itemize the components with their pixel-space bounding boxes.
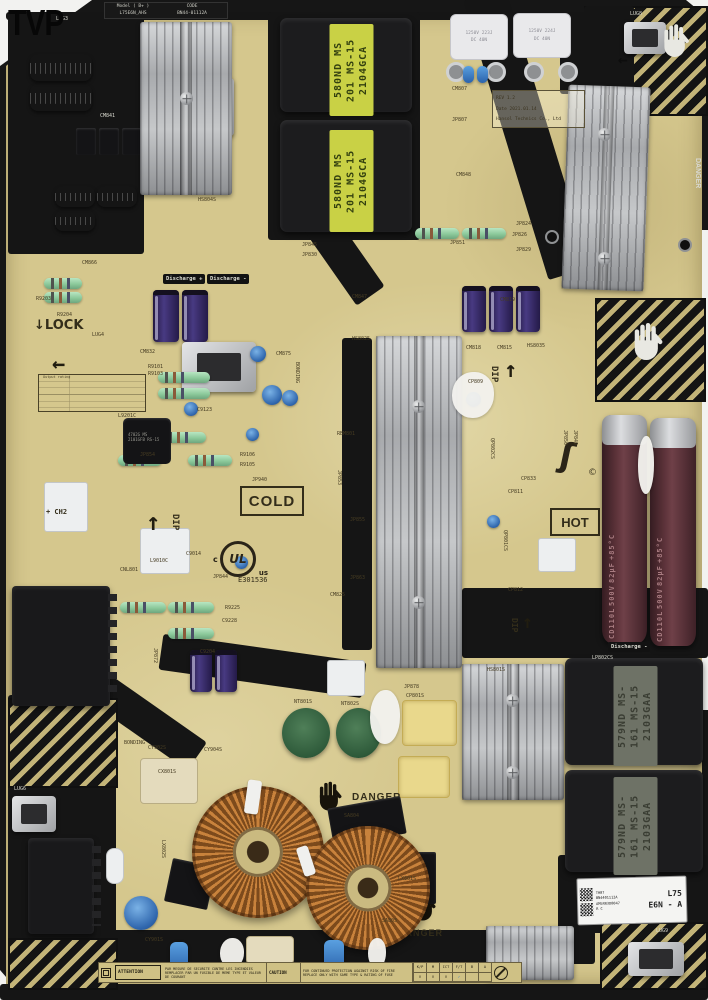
beige-component xyxy=(140,758,198,804)
purple-cap xyxy=(153,290,179,342)
class2-insulation-icon xyxy=(101,968,111,978)
metal-lug-clip-bl xyxy=(12,796,56,832)
blue-disc-cap xyxy=(184,402,198,416)
screw xyxy=(412,596,425,609)
electrolytic-cap xyxy=(97,186,137,207)
silkscreen-designator: CM832 xyxy=(140,349,155,355)
transformer-1-label: 580ND MS 201 MS-15 2104GCA xyxy=(330,24,374,116)
glue-blob xyxy=(370,690,400,744)
silkscreen-designator: CX801S xyxy=(158,769,176,775)
silkscreen-designator: CM825 xyxy=(330,592,345,598)
silkscreen-designator: R9103 xyxy=(148,371,163,377)
discharge-minus-label: Discharge - xyxy=(207,274,249,284)
solder-pad xyxy=(486,62,506,82)
blue-disc-cap xyxy=(487,515,500,528)
lug4-label: LUG4 xyxy=(92,332,104,338)
dip-label: DIP xyxy=(489,366,499,382)
silkscreen-designator: CP809 xyxy=(468,379,483,385)
mount-hole xyxy=(678,238,692,252)
film-cap-white-2: 1250V 224JDC 40N xyxy=(513,13,571,58)
silkscreen-designator: JP824 xyxy=(516,221,531,227)
white-component xyxy=(44,482,88,532)
silkscreen-designator: CY901S xyxy=(145,937,163,943)
film-cap-black xyxy=(76,128,96,155)
silkscreen-designator: CY902S xyxy=(148,745,166,751)
purple-cap xyxy=(182,290,208,342)
footer-warning-strip: ATTENTION PAR MESURE DE SECURITE CONTRE … xyxy=(98,962,522,983)
resistor xyxy=(188,455,232,466)
silkscreen-designator: JP830 xyxy=(302,252,317,258)
attention-label: ATTENTION xyxy=(115,965,161,980)
screw xyxy=(598,252,611,265)
heatsink-middle xyxy=(376,336,462,668)
silkscreen-designator: R9225 xyxy=(225,605,240,611)
silkscreen-designator: CNL801 xyxy=(120,567,138,573)
silkscreen-designator: CM841 xyxy=(100,113,115,119)
transformer-2-label: 580ND MS 201 MS-15 2104GCA xyxy=(330,130,374,232)
yellow-film-cap xyxy=(402,700,457,746)
silkscreen-designator: NT802S xyxy=(341,701,359,707)
silkscreen-designator: CM848 xyxy=(456,172,471,178)
screw xyxy=(412,400,425,413)
silkscreen-designator: RBM801 xyxy=(337,431,355,437)
silkscreen-designator: JP850 xyxy=(562,430,568,445)
lug8-label: LUG8 xyxy=(630,11,642,17)
silkscreen-designator: HS801S xyxy=(487,667,505,673)
arrow-up-icon: ↑ xyxy=(522,612,533,633)
code-value: BN44-01112A xyxy=(161,11,223,16)
blue-cap xyxy=(477,66,488,83)
screw xyxy=(180,92,193,105)
silkscreen-designator: LX801S xyxy=(398,876,416,882)
resistor xyxy=(44,278,82,289)
silkscreen-designator: C9123 xyxy=(197,407,212,413)
ch2-label: + CH2 xyxy=(46,508,67,516)
pcb-photo: Model ( B+ ) CODE L75E6N_AHS BN44-01112A… xyxy=(0,0,708,1000)
film-cap-black xyxy=(99,128,119,155)
danger-hand-icon xyxy=(660,20,694,62)
silkscreen-designator: C9204 xyxy=(200,649,215,655)
silkscreen-designator: CP833 xyxy=(521,476,536,482)
blue-disc-cap xyxy=(282,390,298,406)
danger-label: DANGER xyxy=(694,158,701,188)
resistor xyxy=(415,228,459,239)
silkscreen-designator: CM875 xyxy=(276,351,291,357)
silkscreen-designator: C9014 xyxy=(186,551,201,557)
silkscreen-designator: CM866 xyxy=(82,260,97,266)
resistor xyxy=(158,388,210,399)
yellow-film-cap xyxy=(398,756,450,798)
purple-cap xyxy=(462,286,486,332)
code-label: CODE xyxy=(161,4,223,9)
attention-text: PAR MESURE DE SECURITE CONTRE LES INCEND… xyxy=(163,963,267,982)
date-text: Date 2021.01.14 xyxy=(496,107,584,112)
fuse xyxy=(106,848,124,884)
blue-disc-cap xyxy=(262,385,282,405)
silkscreen-designator: SA804 xyxy=(344,813,359,819)
lug9-label: LUG9 xyxy=(656,928,668,934)
black-slot-mid-vertical xyxy=(342,338,372,650)
purple-cap xyxy=(489,286,513,332)
purple-cap xyxy=(215,650,237,692)
lock-label: ↓LOCK xyxy=(34,318,83,333)
model-label: Model ( B+ ) xyxy=(105,4,161,9)
bonding-label: BONDING xyxy=(294,362,300,383)
silkscreen-designator: SA803 xyxy=(382,918,397,924)
electrolytic-cap xyxy=(30,54,92,81)
silkscreen-designator: NT801S xyxy=(294,699,312,705)
silkscreen-designator: QP802CS xyxy=(489,438,495,459)
electrolytic-cap xyxy=(55,186,95,207)
caution-label: CAUTION xyxy=(267,963,301,982)
silkscreen-designator: JP844 xyxy=(213,574,228,580)
resistor xyxy=(120,602,166,613)
connector-bottom-left xyxy=(28,838,94,934)
silkscreen-designator: JP940 xyxy=(252,477,267,483)
discharge-minus-label: Discharge - xyxy=(608,642,650,652)
white-component xyxy=(327,660,365,696)
silkscreen-designator: CM807 xyxy=(452,86,467,92)
cold-label: COLD xyxy=(240,486,304,516)
discharge-plus-label: Discharge + xyxy=(163,274,205,284)
silkscreen-designator: JP826 xyxy=(512,232,527,238)
purple-cap xyxy=(190,650,212,692)
maker-text: Hansol Technics Co., Ltd xyxy=(496,117,584,122)
electrolytic-cap xyxy=(55,210,95,231)
silkscreen-designator: L9010C xyxy=(150,558,168,564)
thermistor-nt801s xyxy=(282,708,330,758)
silkscreen-designator: JP807 xyxy=(452,117,467,123)
screw xyxy=(506,694,519,707)
lug6-label: LUG6 xyxy=(14,786,26,792)
blue-disc-cap xyxy=(250,346,266,362)
white-component xyxy=(538,538,576,572)
resistor xyxy=(168,602,214,613)
rev-box: REV 1.2 Date 2021.01.14 Hansol Technics … xyxy=(492,90,585,128)
model-value: L75E6N_AHS xyxy=(105,11,161,16)
connector-cnl801 xyxy=(12,586,110,706)
mount-hole xyxy=(545,230,559,244)
dip-label: DIP xyxy=(510,618,519,632)
silkscreen-designator: JP853 xyxy=(336,470,342,485)
toroid-inductor-2 xyxy=(306,826,430,950)
screw xyxy=(506,766,519,779)
silkscreen-designator: JP845 xyxy=(302,242,317,248)
silkscreen-designator: HS804S xyxy=(198,197,216,203)
ul-mark: c UL us xyxy=(220,541,256,577)
screw xyxy=(598,128,611,141)
hot-label: HOT xyxy=(550,508,600,536)
metal-lug-clip-mid xyxy=(182,342,256,392)
silkscreen-designator: JP863 xyxy=(350,575,365,581)
silkscreen-designator: CP811 xyxy=(508,489,523,495)
silkscreen-designator: JP855 xyxy=(350,517,365,523)
copyright-icon: © xyxy=(588,468,597,478)
silkscreen-designator: JP854 xyxy=(140,452,155,458)
silkscreen-designator: R9203 xyxy=(36,296,51,302)
output-rating-table: Output rating xyxy=(38,374,146,412)
resistor xyxy=(158,372,210,383)
regulator-label: 4702G MS 2101GFB RS-15 xyxy=(128,432,166,442)
arrow-left-icon: ← xyxy=(618,50,628,69)
heatsink-bottom xyxy=(462,664,564,800)
sticker-text: TH07BN4401112A AM5RR3D0047R C xyxy=(596,889,646,912)
dip-label: DIP xyxy=(170,514,180,530)
silkscreen-designator: JP851 xyxy=(450,240,465,246)
silkscreen-designator: LP802CS xyxy=(592,655,613,661)
solder-pad xyxy=(524,62,544,82)
silkscreen-designator: CM847 xyxy=(352,294,367,300)
model-code-strip: Model ( B+ ) CODE L75E6N_AHS BN44-01112A xyxy=(104,2,228,19)
arrow-up-icon: ↑ xyxy=(504,358,517,383)
qr-code xyxy=(580,903,593,916)
bulk-capacitor-2: CD110L500V82μF+85°C xyxy=(650,418,696,646)
silkscreen-designator: LX802S xyxy=(160,840,166,858)
silkscreen-designator: CP801S xyxy=(406,693,424,699)
bonding-label: BONDING xyxy=(124,740,145,746)
solder-pad xyxy=(558,62,578,82)
glue-blob xyxy=(638,436,654,494)
silkscreen-designator: CP812 xyxy=(508,587,523,593)
resistor xyxy=(168,628,214,639)
silkscreen-designator: CM815 xyxy=(497,345,512,351)
blue-disc-cap xyxy=(246,428,259,441)
purple-cap xyxy=(516,286,540,332)
beige-cap xyxy=(246,936,294,964)
silkscreen-designator: R9105 xyxy=(240,462,255,468)
silkscreen-designator: C9228 xyxy=(222,618,237,624)
heatsink-top-left xyxy=(140,22,232,195)
silkscreen-designator: R9204 xyxy=(57,312,72,318)
ul-file-number: E301536 xyxy=(238,576,268,584)
silkscreen-designator: L9201C xyxy=(118,413,136,419)
silkscreen-designator: JP829 xyxy=(516,247,531,253)
prohibition-icon xyxy=(494,966,508,980)
rev-text: REV 1.2 xyxy=(496,96,584,101)
qr-code xyxy=(580,888,593,901)
part-number-sticker: TH07BN4401112A AM5RR3D0047R C L75E6N - A xyxy=(576,876,687,926)
transformer-3-label: 579ND MS-161 MS-15 2103GAA xyxy=(614,666,658,766)
silkscreen-designator: CY904S xyxy=(204,747,222,753)
silkscreen-designator: QP801CS xyxy=(502,530,508,551)
silkscreen-designator: JP872 xyxy=(152,648,158,663)
arrow-up-icon: ↑ xyxy=(146,508,160,536)
silkscreen-designator: CM818 xyxy=(466,345,481,351)
blue-cap xyxy=(463,66,474,83)
caution-text: FOR CONTINUED PROTECTION AGAINST RISK OF… xyxy=(301,963,413,982)
silkscreen-designator: JP878 xyxy=(404,684,419,690)
danger-hand-icon xyxy=(630,318,668,366)
silkscreen-designator: R9106 xyxy=(240,452,255,458)
metal-lug-clip-br xyxy=(628,942,684,976)
electrolytic-cap xyxy=(30,84,92,111)
tvp-watermark: TVP xyxy=(8,4,63,45)
transformer-4-label: 579ND MS-161 MS-15 2103GAA xyxy=(614,777,658,875)
sticker-model: L75E6N - A xyxy=(648,889,684,911)
silkscreen-designator: CM819 xyxy=(500,297,515,303)
film-cap-black xyxy=(122,128,142,155)
resistor xyxy=(462,228,506,239)
silkscreen-designator: JP849 xyxy=(572,430,578,445)
hatch-zone-left xyxy=(8,698,118,788)
blue-cap-cy901s xyxy=(124,896,158,930)
film-cap-white-1: 1250V 223JDC 40N xyxy=(450,14,508,60)
silkscreen-designator: R9101 xyxy=(148,364,163,370)
fuse-type-table: K/PMICTF/TBA VVV✓ xyxy=(413,963,492,982)
silkscreen-designator: HS8035 xyxy=(527,343,545,349)
silkscreen-designator: HS8025 xyxy=(352,336,370,342)
